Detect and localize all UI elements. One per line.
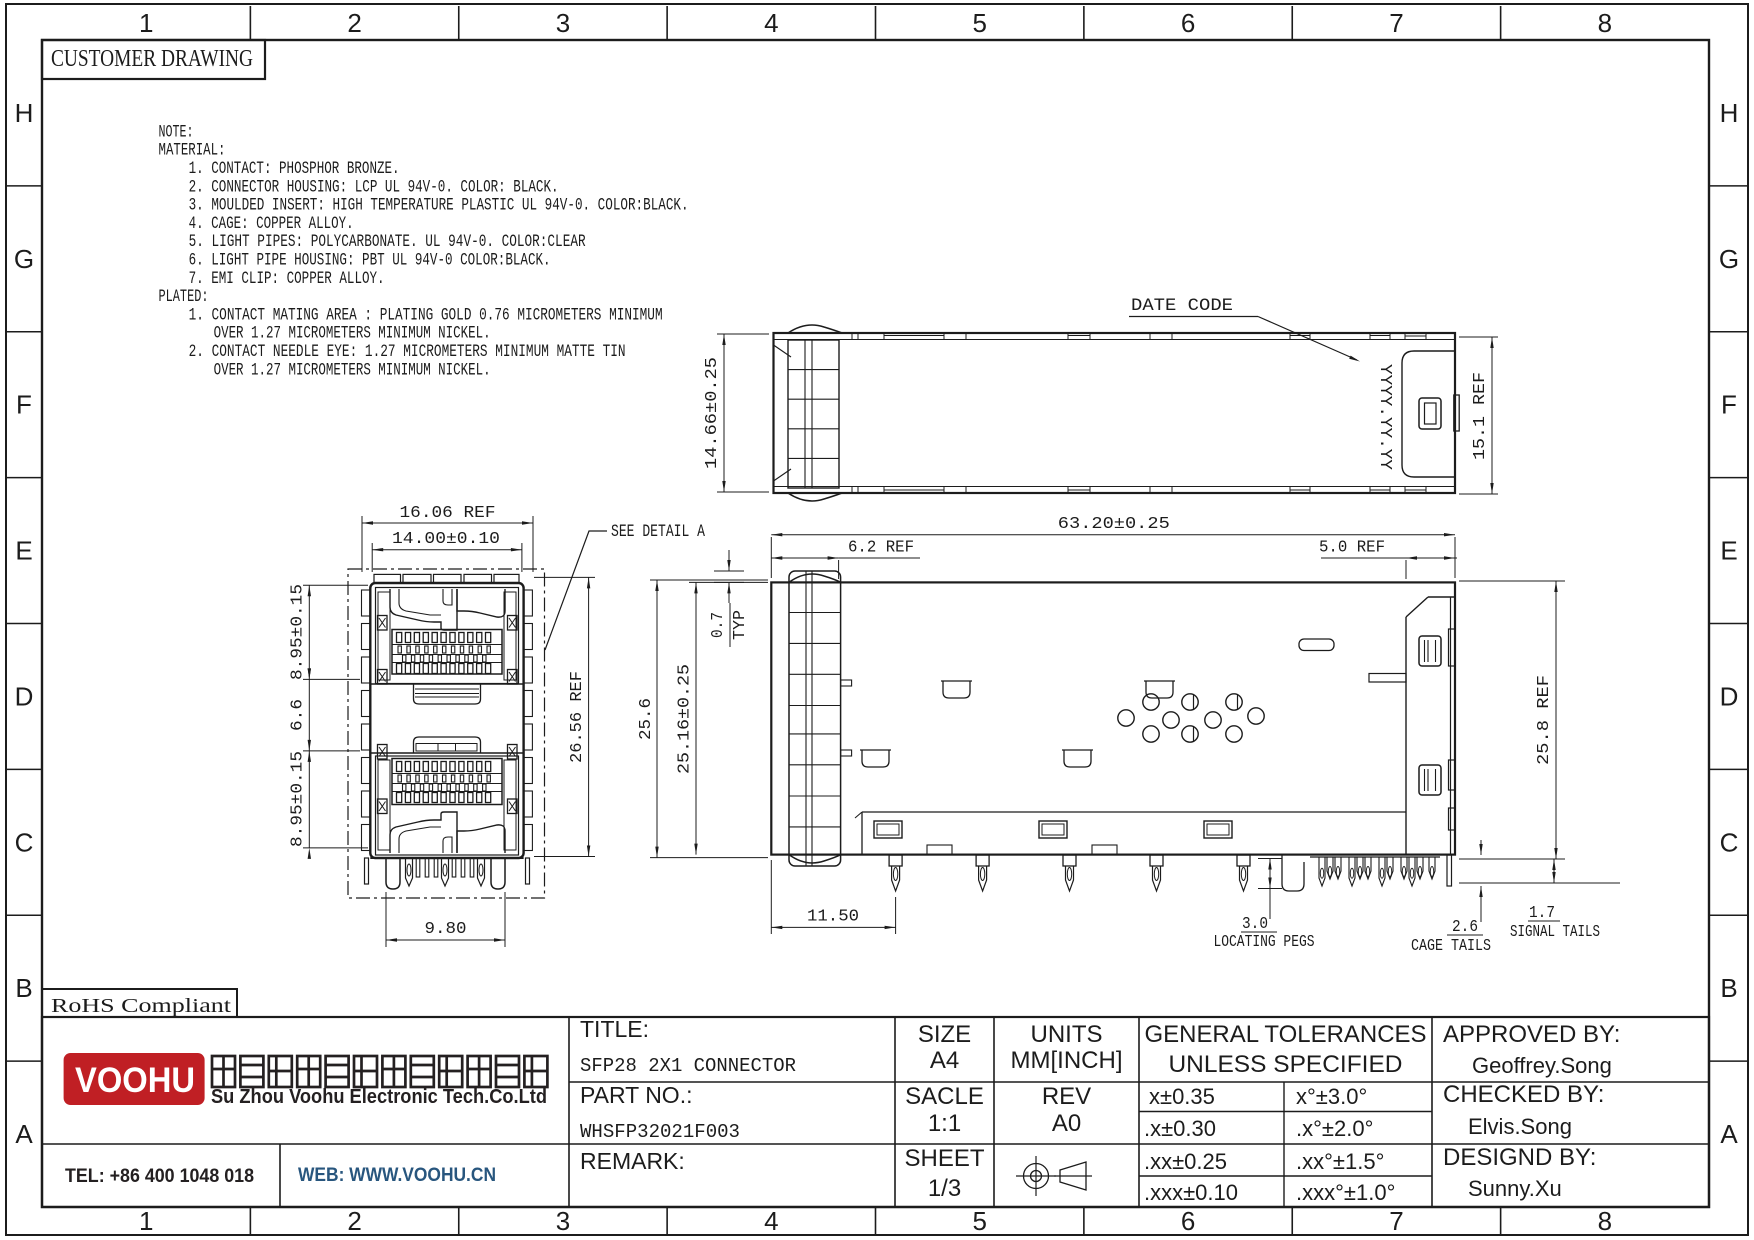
svg-text:3: 3: [556, 8, 570, 38]
svg-text:NOTE:: NOTE:: [159, 122, 194, 142]
svg-text:4. CAGE: COPPER ALLOY.: 4. CAGE: COPPER ALLOY.: [189, 214, 354, 234]
svg-text:A4: A4: [930, 1047, 959, 1074]
svg-text:D: D: [15, 681, 34, 711]
svg-text:.x±0.30: .x±0.30: [1144, 1116, 1216, 1141]
svg-text:APPROVED BY:: APPROVED BY:: [1443, 1021, 1620, 1048]
svg-text:8.95±0.15: 8.95±0.15: [288, 751, 307, 847]
svg-text:UNITS: UNITS: [1031, 1021, 1103, 1048]
svg-text:5: 5: [972, 1206, 986, 1236]
svg-text:14.66±0.25: 14.66±0.25: [703, 357, 722, 469]
svg-text:DESIGND BY:: DESIGND BY:: [1443, 1144, 1596, 1171]
svg-text:6: 6: [1181, 8, 1195, 38]
svg-text:6: 6: [1181, 1206, 1195, 1236]
svg-text:MM[INCH]: MM[INCH]: [1011, 1047, 1123, 1074]
svg-text:SFP28 2X1 CONNECTOR: SFP28 2X1 CONNECTOR: [580, 1055, 796, 1077]
svg-text:REV: REV: [1042, 1083, 1091, 1110]
svg-text:1.7: 1.7: [1529, 904, 1555, 923]
svg-text:2: 2: [347, 1206, 361, 1236]
svg-text:2. CONTACT NEEDLE EYE: 1.27 MI: 2. CONTACT NEEDLE EYE: 1.27 MICROMETERS …: [189, 342, 626, 362]
svg-text:E: E: [1720, 536, 1737, 566]
svg-text:OVER 1.27 MICROMETERS MINIMUM: OVER 1.27 MICROMETERS MINIMUM NICKEL.: [214, 324, 491, 344]
svg-text:SEE DETAIL A: SEE DETAIL A: [611, 522, 705, 542]
svg-text:1. CONTACT: PHOSPHOR BRONZE.: 1. CONTACT: PHOSPHOR BRONZE.: [189, 159, 400, 179]
svg-text:26.56 REF: 26.56 REF: [568, 671, 587, 763]
svg-text:0.7: 0.7: [708, 612, 727, 638]
svg-text:3. MOULDED INSERT: HIGH TEMPER: 3. MOULDED INSERT: HIGH TEMPERATURE PLAS…: [189, 196, 689, 216]
svg-text:6.2 REF: 6.2 REF: [848, 539, 914, 558]
svg-text:5. LIGHT PIPES: POLYCARBONATE.: 5. LIGHT PIPES: POLYCARBONATE. UL 94V-0.…: [189, 232, 586, 252]
svg-text:H: H: [1720, 98, 1739, 128]
svg-text:15.1 REF: 15.1 REF: [1471, 372, 1490, 460]
svg-text:2.6: 2.6: [1452, 918, 1478, 937]
svg-text:2. CONNECTOR HOUSING: LCP UL 9: 2. CONNECTOR HOUSING: LCP UL 94V-0. COLO…: [189, 177, 559, 197]
svg-text:OVER 1.27 MICROMETERS MINIMUM: OVER 1.27 MICROMETERS MINIMUM NICKEL.: [214, 360, 491, 380]
svg-text:63.20±0.25: 63.20±0.25: [1058, 515, 1170, 534]
svg-text:VOOHU: VOOHU: [75, 1061, 195, 1100]
svg-text:SIZE: SIZE: [918, 1021, 971, 1048]
svg-text:TITLE:: TITLE:: [580, 1016, 649, 1042]
svg-text:8.95±0.15: 8.95±0.15: [288, 584, 307, 680]
svg-text:25.16±0.25: 25.16±0.25: [676, 664, 695, 774]
svg-text:x±0.35: x±0.35: [1149, 1084, 1215, 1109]
svg-text:G: G: [1719, 244, 1739, 274]
svg-text:7. EMI CLIP: COPPER ALLOY.: 7. EMI CLIP: COPPER ALLOY.: [189, 269, 385, 289]
svg-text:6. LIGHT PIPE HOUSING: PBT UL: 6. LIGHT PIPE HOUSING: PBT UL 94V-0 COLO…: [189, 251, 551, 271]
svg-text:H: H: [15, 98, 34, 128]
svg-text:SIGNAL TAILS: SIGNAL TAILS: [1510, 923, 1600, 942]
svg-text:B: B: [1720, 973, 1737, 1003]
svg-text:5.0 REF: 5.0 REF: [1319, 539, 1385, 558]
svg-text:LOCATING PEGS: LOCATING PEGS: [1214, 933, 1315, 952]
svg-text:WHSFP32021F003: WHSFP32021F003: [580, 1121, 740, 1143]
svg-text:3.0: 3.0: [1242, 915, 1268, 934]
svg-text:1. CONTACT MATING AREA : PLATI: 1. CONTACT MATING AREA : PLATING GOLD 0.…: [189, 305, 663, 325]
svg-text:MATERIAL:: MATERIAL:: [159, 141, 226, 161]
svg-text:.xx°±1.5°: .xx°±1.5°: [1296, 1149, 1384, 1174]
svg-text:1: 1: [139, 8, 153, 38]
svg-text:9.80: 9.80: [425, 920, 467, 939]
svg-text:x°±3.0°: x°±3.0°: [1296, 1084, 1367, 1109]
svg-text:SACLE: SACLE: [905, 1083, 984, 1110]
svg-text:1: 1: [139, 1206, 153, 1236]
svg-text:WEB: WWW.VOOHU.CN: WEB: WWW.VOOHU.CN: [298, 1165, 496, 1186]
svg-text:.x°±2.0°: .x°±2.0°: [1296, 1116, 1373, 1141]
svg-text:F: F: [1721, 390, 1737, 420]
svg-text:C: C: [15, 827, 34, 857]
svg-text:PLATED:: PLATED:: [159, 287, 209, 307]
svg-text:GENERAL TOLERANCES: GENERAL TOLERANCES: [1145, 1021, 1427, 1048]
svg-text:8: 8: [1598, 8, 1612, 38]
svg-text:B: B: [15, 973, 32, 1003]
svg-text:TYP: TYP: [730, 610, 749, 640]
svg-text:7: 7: [1389, 1206, 1403, 1236]
svg-text:7: 7: [1389, 8, 1403, 38]
svg-text:RoHS Compliant: RoHS Compliant: [51, 995, 232, 1017]
svg-text:.xx±0.25: .xx±0.25: [1144, 1149, 1227, 1174]
svg-text:A: A: [15, 1119, 33, 1149]
svg-text:.xxx°±1.0°: .xxx°±1.0°: [1296, 1180, 1395, 1205]
svg-text:8: 8: [1598, 1206, 1612, 1236]
svg-text:25.8 REF: 25.8 REF: [1535, 675, 1554, 765]
svg-text:F: F: [16, 390, 32, 420]
svg-text:4: 4: [764, 8, 778, 38]
svg-text:TEL: +86 400 1048 018: TEL: +86 400 1048 018: [65, 1166, 254, 1187]
svg-text:14.00±0.10: 14.00±0.10: [392, 530, 500, 549]
svg-text:25.6: 25.6: [637, 698, 656, 740]
svg-text:PART NO.:: PART NO.:: [580, 1082, 692, 1108]
svg-text:4: 4: [764, 1206, 778, 1236]
svg-text:C: C: [1720, 827, 1739, 857]
svg-text:Geoffrey.Song: Geoffrey.Song: [1472, 1053, 1612, 1078]
svg-text:A0: A0: [1052, 1110, 1081, 1137]
svg-text:.xxx±0.10: .xxx±0.10: [1144, 1180, 1238, 1205]
svg-text:YYYY.YY.YY: YYYY.YY.YY: [1375, 364, 1394, 470]
svg-text:E: E: [15, 536, 32, 566]
svg-text:UNLESS SPECIFIED: UNLESS SPECIFIED: [1169, 1051, 1403, 1078]
svg-text:1/3: 1/3: [928, 1175, 961, 1202]
svg-text:11.50: 11.50: [807, 908, 859, 927]
svg-text:DATE CODE: DATE CODE: [1131, 296, 1233, 316]
svg-text:D: D: [1720, 681, 1739, 711]
svg-text:Elvis.Song: Elvis.Song: [1468, 1114, 1572, 1139]
svg-text:CUSTOMER DRAWING: CUSTOMER DRAWING: [51, 46, 253, 72]
svg-text:CAGE TAILS: CAGE TAILS: [1411, 937, 1491, 956]
svg-text:2: 2: [347, 8, 361, 38]
svg-text:A: A: [1720, 1119, 1738, 1149]
svg-text:REMARK:: REMARK:: [580, 1148, 685, 1174]
svg-text:Sunny.Xu: Sunny.Xu: [1468, 1176, 1562, 1201]
svg-text:SHEET: SHEET: [904, 1145, 984, 1172]
svg-text:Su Zhou Voohu Electronic Tech.: Su Zhou Voohu Electronic Tech.Co.Ltd: [211, 1086, 547, 1108]
svg-text:3: 3: [556, 1206, 570, 1236]
svg-text:5: 5: [972, 8, 986, 38]
svg-text:16.06 REF: 16.06 REF: [400, 504, 496, 523]
svg-text:CHECKED BY:: CHECKED BY:: [1443, 1081, 1604, 1108]
svg-text:1:1: 1:1: [928, 1110, 961, 1137]
svg-text:G: G: [14, 244, 34, 274]
svg-text:6.6: 6.6: [288, 699, 307, 731]
